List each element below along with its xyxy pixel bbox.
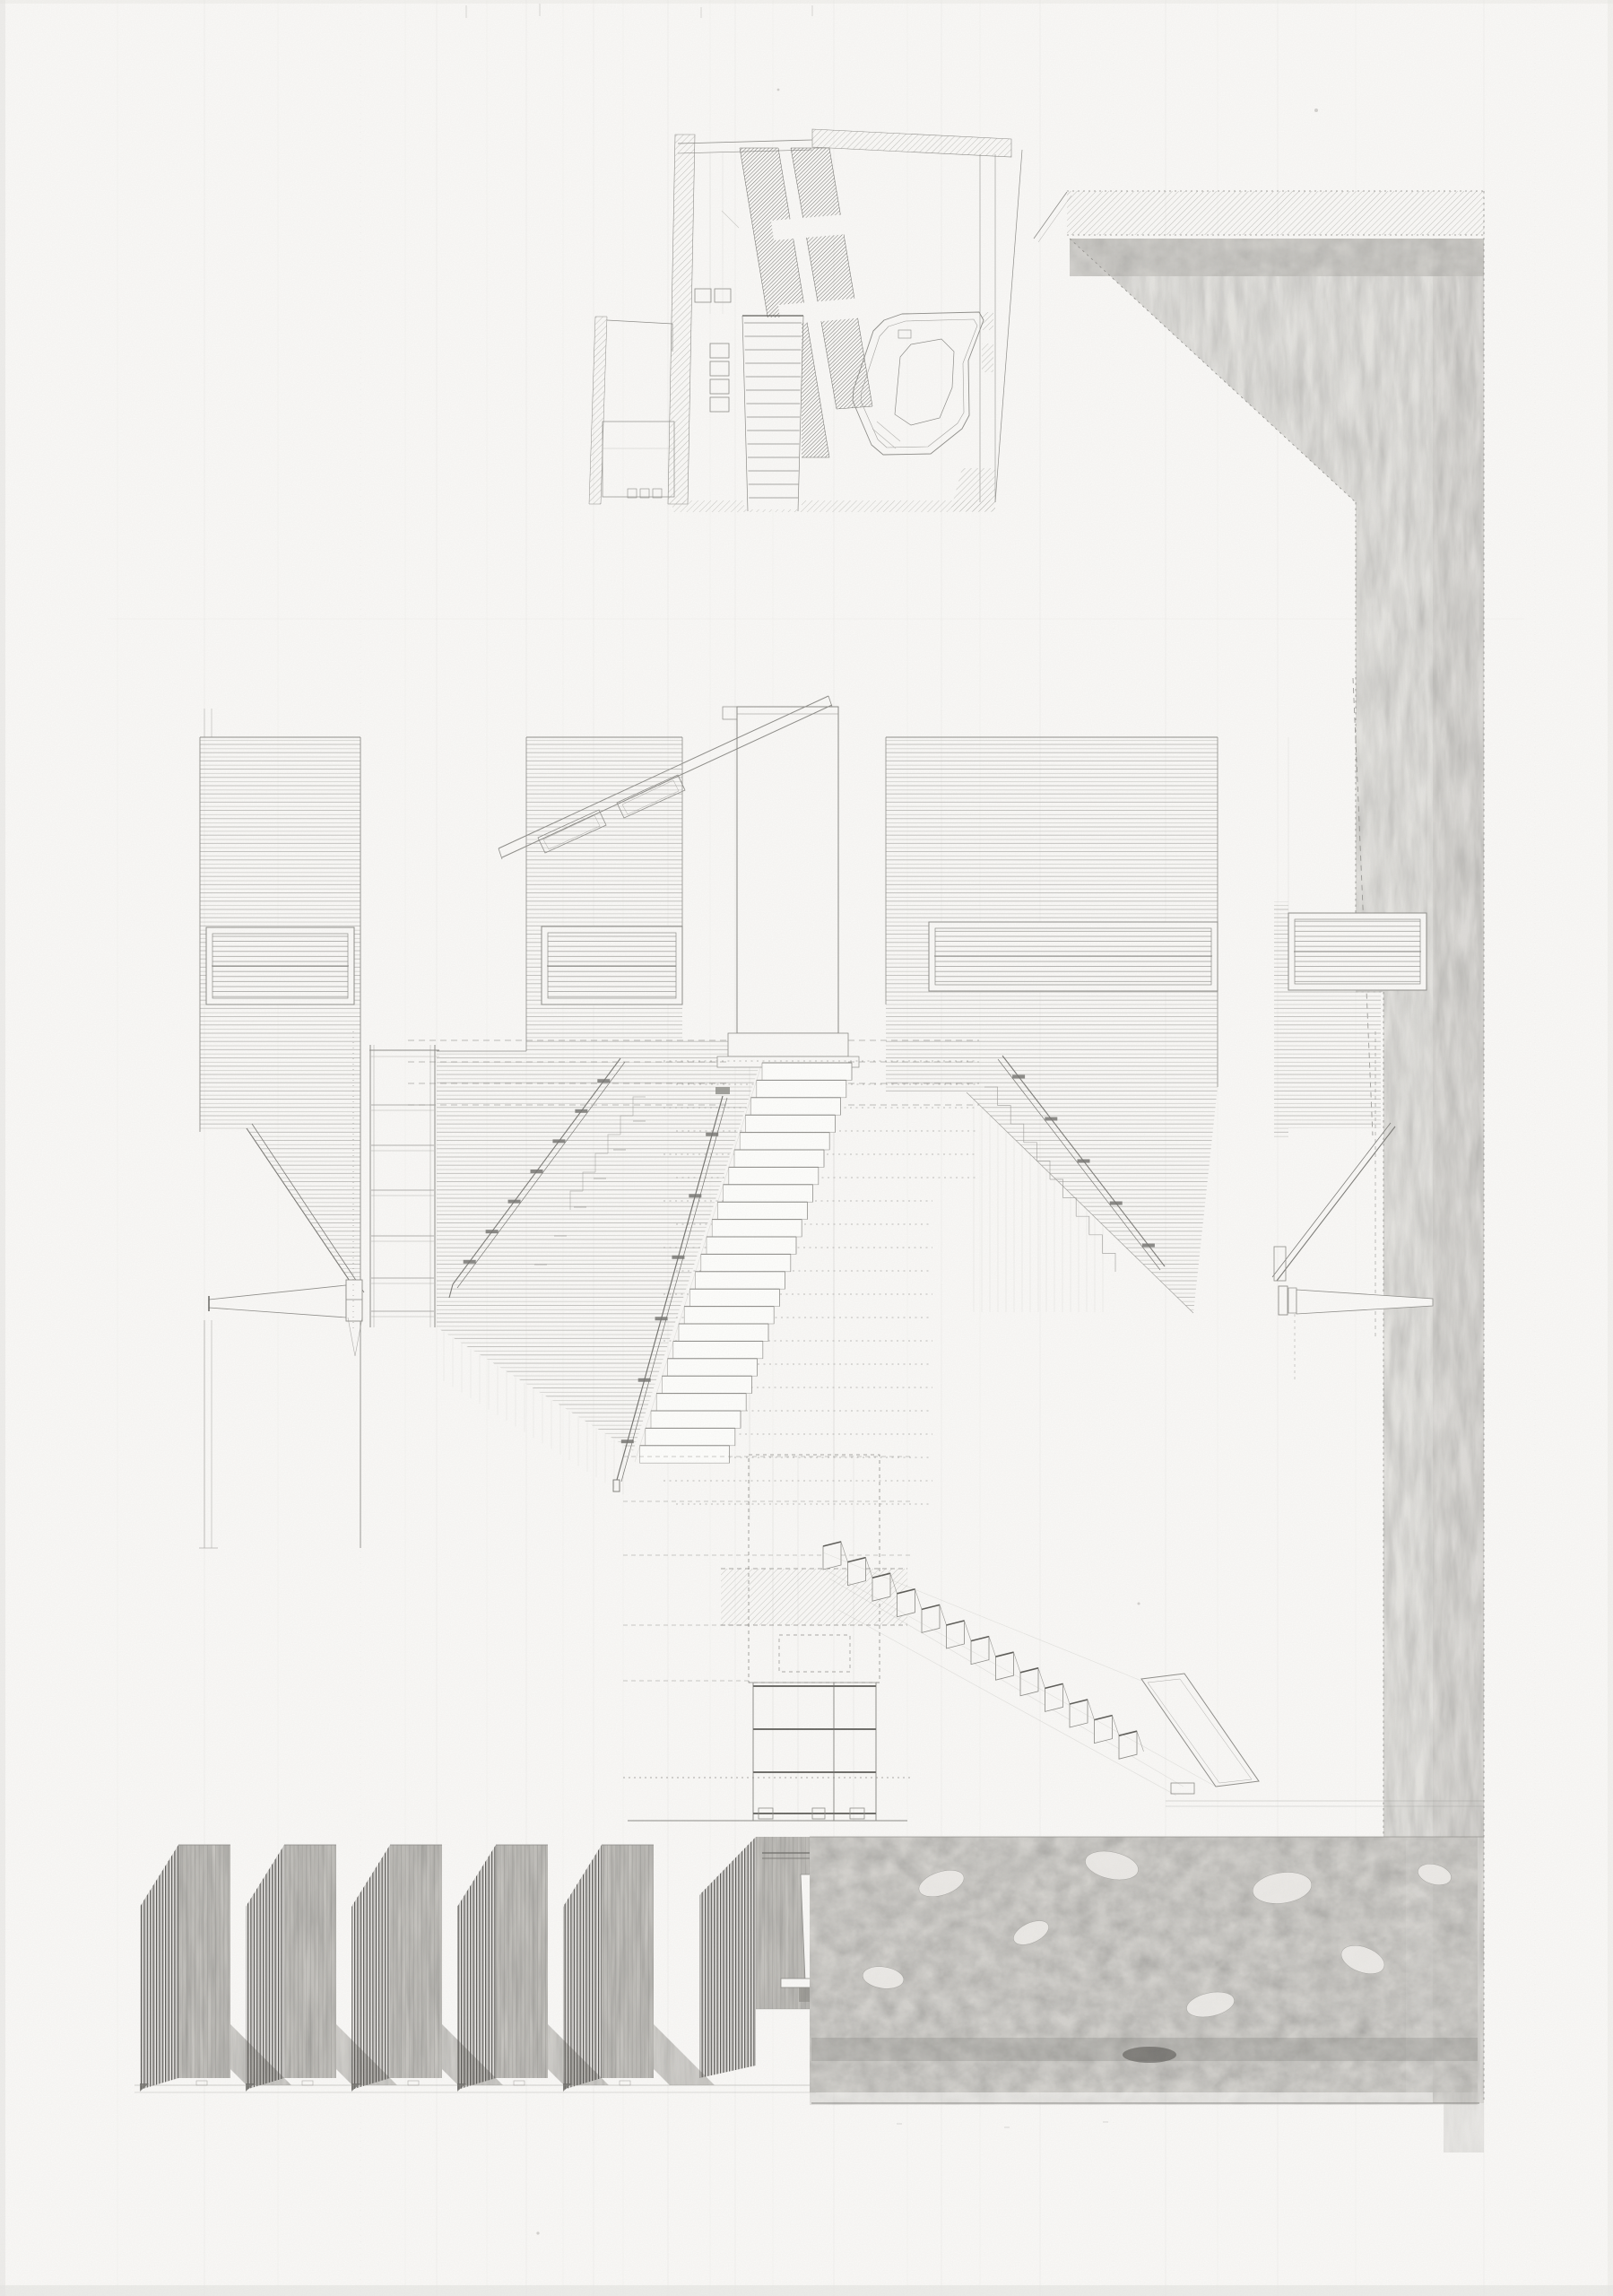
plan-furniture bbox=[695, 289, 731, 412]
drawing-svg bbox=[0, 0, 1613, 2296]
plan-stair bbox=[742, 316, 803, 511]
left-funnel bbox=[209, 1280, 362, 1356]
axon-right-wall bbox=[886, 737, 1218, 1313]
plan-door-swing bbox=[722, 211, 739, 228]
lower-service-shaft bbox=[623, 1455, 1184, 1821]
right-wall-window bbox=[929, 922, 1218, 991]
right-stringer-hatch bbox=[886, 1004, 1218, 1313]
left-wall-stem bbox=[199, 1320, 218, 1548]
plan-top-wall-poche bbox=[812, 129, 1011, 157]
band-top-hatch bbox=[1067, 191, 1484, 235]
plan-annex bbox=[589, 317, 674, 504]
band-vegetation-texture bbox=[1433, 239, 1484, 2103]
shaft-hatch-small bbox=[779, 1635, 850, 1672]
lamp-pier-side bbox=[699, 1837, 756, 2078]
pier-baseline bbox=[134, 2085, 816, 2092]
plan-right-wall bbox=[950, 150, 1022, 511]
top-edge-ticks bbox=[466, 4, 812, 18]
zigzag-stair bbox=[823, 1542, 1144, 1759]
center-wall-window bbox=[542, 926, 682, 1004]
roof-plan bbox=[589, 129, 1022, 512]
core-base-flare bbox=[728, 1033, 848, 1057]
rock-garden bbox=[810, 1801, 1484, 2127]
plan-pool bbox=[853, 312, 984, 455]
shaft-ladder bbox=[623, 1683, 910, 1821]
far-right-window bbox=[1288, 913, 1427, 990]
band-tail bbox=[1444, 2103, 1484, 2152]
axon-ladder bbox=[353, 1031, 439, 1332]
left-wall-window bbox=[206, 927, 354, 1004]
pier-row bbox=[140, 1845, 715, 2092]
axon-left-wall bbox=[199, 709, 364, 1548]
drawing-sheet bbox=[0, 0, 1613, 2296]
far-right-hatch bbox=[1288, 990, 1381, 1128]
left-wall-hatch bbox=[200, 737, 360, 1297]
band-top-fringe bbox=[1070, 239, 1484, 276]
band-left-cap bbox=[1034, 192, 1067, 239]
right-ramp bbox=[1272, 1123, 1395, 1281]
core-shaft bbox=[737, 707, 838, 1033]
plan-bottom-wall-poche bbox=[672, 500, 995, 512]
